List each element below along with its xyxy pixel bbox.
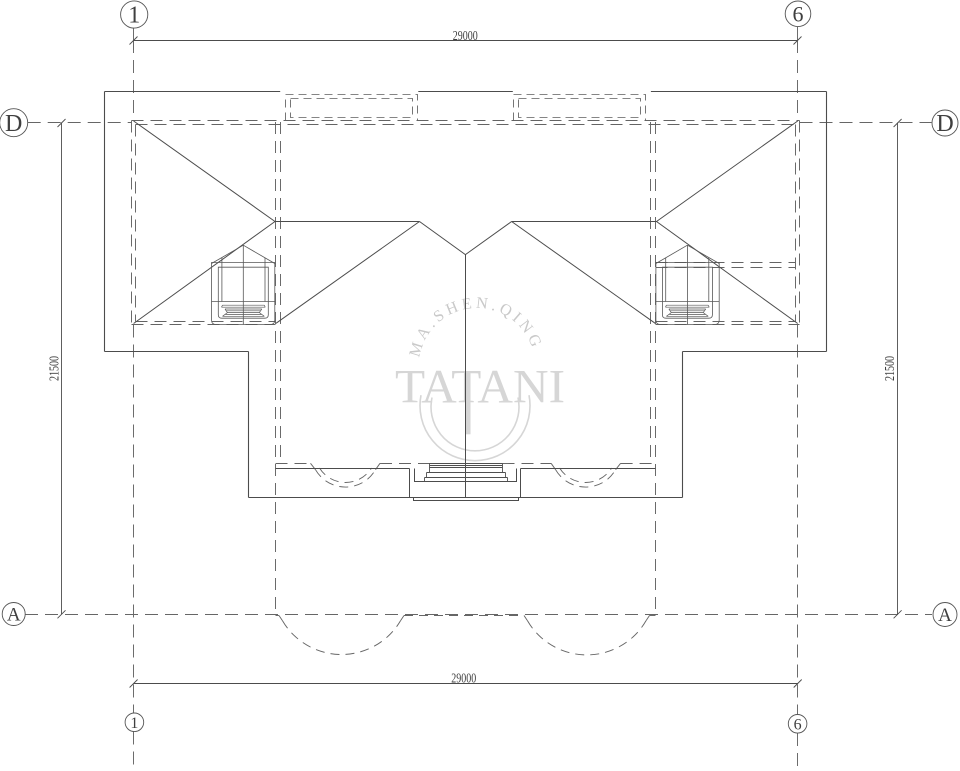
svg-text:6: 6	[794, 717, 802, 734]
svg-text:29000: 29000	[453, 29, 478, 44]
svg-text:A: A	[938, 605, 952, 626]
svg-text:6: 6	[793, 1, 804, 26]
svg-text:D: D	[5, 111, 22, 137]
svg-text:D: D	[936, 111, 953, 137]
svg-text:1: 1	[128, 3, 140, 29]
svg-text:1: 1	[130, 715, 138, 732]
svg-text:MA.SHEN.QING: MA.SHEN.QING	[406, 295, 545, 359]
svg-text:21500: 21500	[47, 356, 62, 381]
svg-text:29000: 29000	[451, 671, 476, 686]
svg-text:A: A	[7, 605, 21, 626]
svg-text:21500: 21500	[883, 356, 898, 381]
